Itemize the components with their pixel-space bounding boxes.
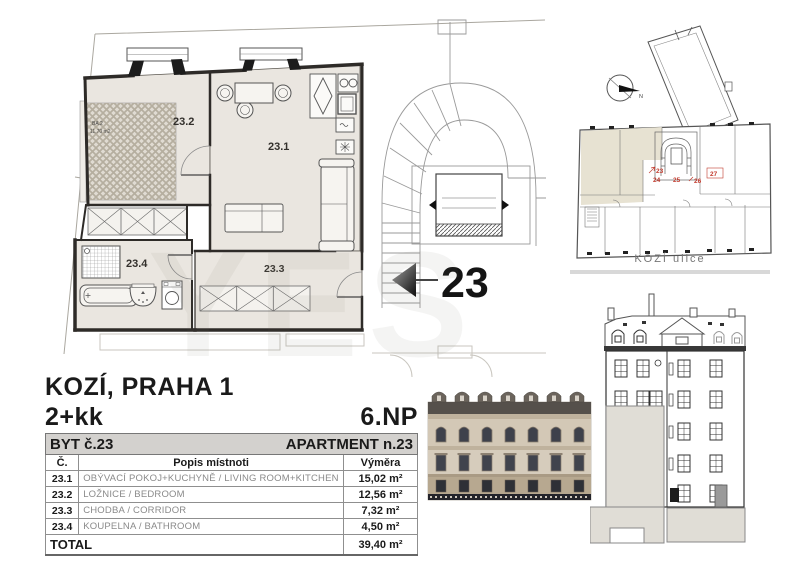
corridor-wardrobes bbox=[200, 286, 310, 311]
street-line bbox=[570, 271, 770, 273]
wardrobe-strip bbox=[88, 208, 187, 235]
washbasin bbox=[130, 284, 156, 306]
label-corridor: 23.3 bbox=[264, 263, 285, 275]
chaise bbox=[225, 204, 283, 232]
site-unit-27: 27 bbox=[710, 171, 718, 178]
floor-label: 6.NP bbox=[360, 403, 418, 432]
site-unit-25: 25 bbox=[673, 177, 681, 184]
table-row: 23.1 OBÝVACÍ POKOJ+KUCHYNĚ / LIVING ROOM… bbox=[46, 471, 418, 487]
dormer-left-1 bbox=[612, 330, 624, 344]
floorplan-sheet: BA.2 11,70 m2 bbox=[0, 0, 800, 566]
table-row: 23.4 KOUPELNA / BATHROOM 4,50 m² bbox=[46, 519, 418, 535]
bed-tag-1: BA.2 bbox=[92, 121, 103, 127]
dormer-right-2 bbox=[732, 333, 742, 345]
title-block: KOZÍ, PRAHA 1 2+kk 6.NP bbox=[45, 374, 418, 432]
total-label: TOTAL bbox=[46, 535, 344, 556]
label-living: 23.1 bbox=[268, 141, 289, 153]
col-number: Č. bbox=[46, 455, 79, 471]
roofline bbox=[605, 294, 745, 347]
col-area: Výměra bbox=[344, 455, 418, 471]
unit-marker: 23 bbox=[392, 259, 489, 307]
label-bathroom: 23.4 bbox=[126, 258, 148, 270]
courtyard-wing bbox=[648, 26, 738, 140]
table-row: 23.2 LOŽNICE / BEDROOM 12,56 m² bbox=[46, 487, 418, 503]
street-label: KOZÍ ulice bbox=[634, 252, 705, 265]
bathtub bbox=[80, 285, 137, 306]
disposition-label: 2+kk bbox=[45, 403, 103, 432]
washing-machine bbox=[162, 281, 182, 309]
table-title-en: APARTMENT n.23 bbox=[286, 436, 413, 453]
site-unit-24: 24 bbox=[653, 177, 661, 184]
main-block: 23 24 25 26 27 bbox=[577, 122, 771, 258]
dormer-left-2 bbox=[634, 330, 646, 344]
svg-text:N: N bbox=[639, 94, 643, 100]
floorplan-drawing: BA.2 11,70 m2 bbox=[40, 8, 550, 378]
table-title-row: BYT č.23 APARTMENT n.23 bbox=[46, 434, 418, 455]
table-title-cz: BYT č.23 bbox=[50, 436, 113, 453]
shower bbox=[82, 246, 120, 278]
table-columns-row: Č. Popis místnoti Výměra bbox=[46, 455, 418, 471]
building-photo bbox=[422, 388, 597, 510]
page-title: KOZÍ, PRAHA 1 bbox=[45, 374, 418, 400]
bed-tag-2: 11,70 m2 bbox=[90, 129, 111, 135]
table-total-row: TOTAL 39,40 m² bbox=[46, 535, 418, 556]
site-unit-26: 26 bbox=[694, 178, 702, 185]
col-description: Popis místnoti bbox=[79, 455, 344, 471]
unit-arrow-icon bbox=[392, 263, 416, 297]
neighbour-lines bbox=[100, 334, 546, 377]
siteplan-drawing: N bbox=[565, 8, 775, 288]
bed-hatched-area: BA.2 11,70 m2 bbox=[80, 101, 176, 202]
table-row: 23.3 CHODBA / CORRIDOR 7,32 m² bbox=[46, 503, 418, 519]
label-bedroom: 23.2 bbox=[173, 116, 194, 128]
total-area: 39,40 m² bbox=[344, 535, 418, 556]
dormer-right-1 bbox=[714, 332, 724, 345]
apartment-table: BYT č.23 APARTMENT n.23 Č. Popis místnot… bbox=[45, 433, 418, 556]
window-bay-living bbox=[240, 48, 302, 71]
sofa bbox=[319, 159, 354, 251]
window-bay-bedroom bbox=[127, 48, 188, 77]
eave-band bbox=[604, 346, 746, 351]
unit-number: 23 bbox=[441, 259, 489, 307]
site-unit-23: 23 bbox=[656, 168, 664, 175]
elevation-drawing bbox=[590, 290, 775, 560]
north-compass-icon: N bbox=[607, 75, 643, 101]
